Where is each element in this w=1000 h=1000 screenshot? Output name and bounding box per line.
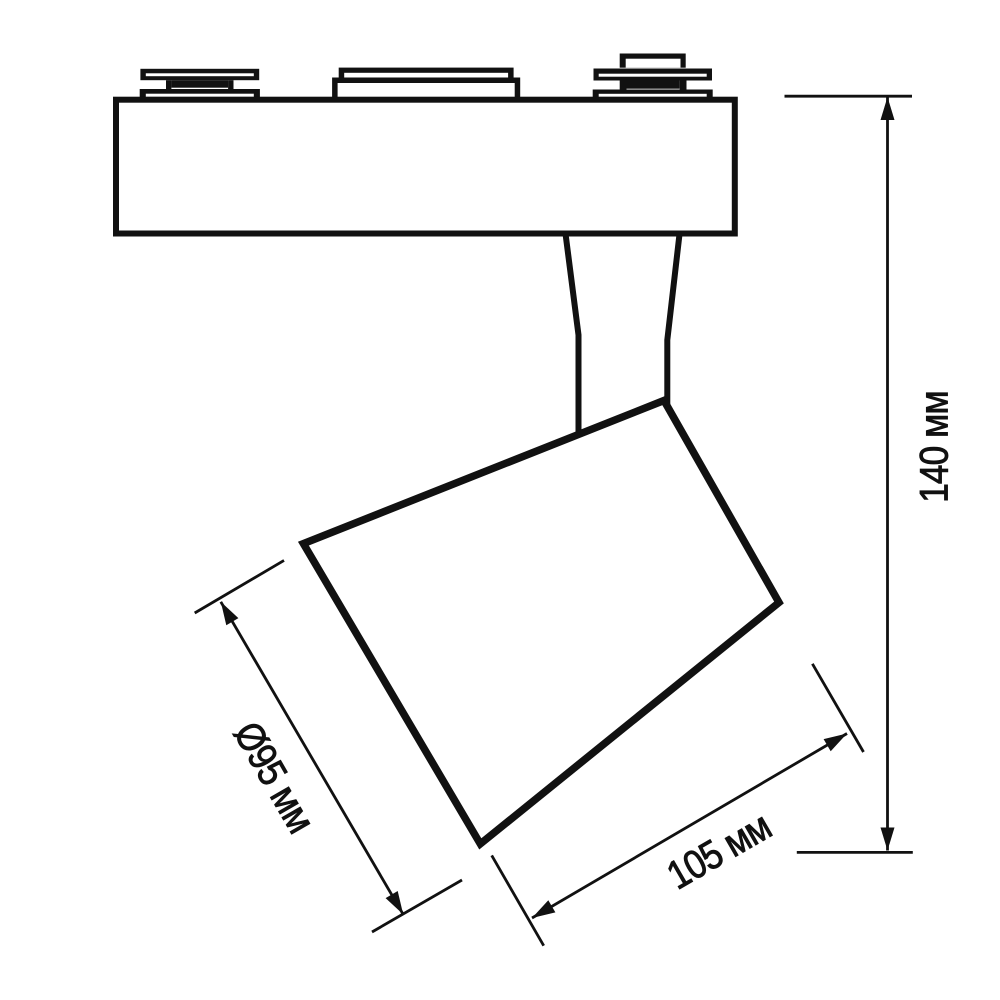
svg-text:140 мм: 140 мм (911, 391, 956, 503)
